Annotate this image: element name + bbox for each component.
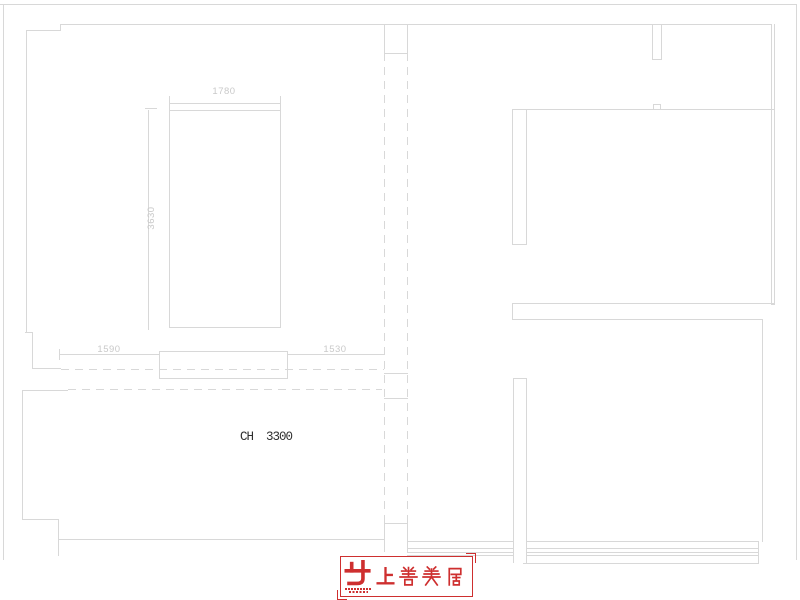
logo-brand-text — [375, 566, 465, 587]
wall-line — [771, 24, 772, 305]
wall-line — [32, 332, 33, 369]
company-logo — [340, 556, 473, 597]
wall-line — [26, 30, 61, 31]
dim-label-opening-right: 1530 — [307, 345, 363, 355]
wall-line — [527, 555, 759, 556]
wall-line — [169, 110, 170, 328]
wall-line — [512, 303, 775, 304]
dim-label-left-height: 3630 — [147, 190, 157, 246]
wall-line — [22, 390, 68, 391]
wall-line — [384, 53, 408, 54]
wall-line — [407, 24, 408, 54]
wall-line — [58, 539, 385, 540]
ceiling-height-label-left-room: CH 3300 — [240, 429, 292, 445]
page-border-line — [0, 4, 797, 5]
wall-line — [60, 24, 772, 25]
wall-line — [660, 104, 661, 109]
wall-line — [758, 541, 759, 564]
wall-line — [652, 24, 653, 60]
wall-line — [280, 110, 281, 328]
logo-microtext-row2 — [349, 591, 368, 593]
wall-line — [527, 552, 759, 553]
wall-line — [159, 351, 160, 379]
wall-line — [384, 523, 408, 524]
dimension-line — [169, 96, 170, 113]
wall-line — [512, 244, 527, 245]
brand-char-shang — [375, 566, 396, 587]
page-border-line — [796, 4, 797, 560]
floor-plan-canvas: 1780 3630 1590 1530 CH 3300 CH2770 CX 50… — [0, 0, 800, 600]
brand-char-ju — [444, 566, 465, 587]
dashed-opening-line — [61, 369, 384, 370]
logo-monogram-icon — [344, 560, 372, 587]
dashed-beam-line — [407, 53, 408, 518]
wall-line — [58, 519, 59, 556]
wall-line — [384, 398, 408, 399]
dimension-line — [59, 349, 60, 360]
wall-line — [526, 378, 527, 563]
logo-mark — [344, 560, 372, 594]
wall-line — [407, 541, 513, 542]
brand-char-mei — [421, 566, 442, 587]
dashed-opening-line — [68, 389, 382, 390]
logo-frame-corner — [337, 590, 347, 600]
wall-line — [512, 303, 513, 320]
wall-line — [384, 373, 408, 374]
brand-char-shan — [398, 566, 419, 587]
wall-line — [169, 110, 281, 111]
wall-line — [512, 109, 513, 245]
wall-line — [526, 109, 527, 245]
wall-line — [526, 319, 762, 320]
wall-line — [653, 104, 654, 109]
wall-line — [513, 378, 514, 563]
wall-line — [774, 24, 775, 305]
wall-line — [384, 24, 385, 54]
dimension-line — [169, 103, 281, 104]
logo-microtext-row1 — [345, 588, 372, 591]
wall-line — [527, 541, 759, 542]
dimension-line — [145, 108, 157, 109]
wall-line — [771, 304, 775, 305]
page-border-line — [3, 4, 4, 560]
wall-line — [523, 563, 759, 564]
wall-line — [26, 30, 27, 333]
wall-line — [169, 327, 281, 328]
ceiling-height-label-right-room: CH2770 CX 500 — [614, 566, 660, 600]
wall-line — [661, 24, 662, 60]
wall-line — [22, 390, 23, 520]
wall-line — [159, 351, 288, 352]
wall-line — [652, 59, 662, 60]
wall-line — [407, 552, 513, 553]
wall-line — [512, 109, 774, 110]
wall-line — [32, 368, 61, 369]
wall-line — [527, 548, 759, 549]
wall-line — [513, 378, 527, 379]
dimension-line — [280, 96, 281, 113]
wall-line — [407, 548, 513, 549]
wall-line — [512, 319, 527, 320]
wall-line — [22, 519, 59, 520]
dashed-beam-line — [384, 53, 385, 518]
dim-label-top-width: 1780 — [196, 87, 252, 97]
wall-line — [762, 319, 763, 542]
wall-line — [287, 351, 288, 379]
wall-line — [60, 24, 61, 31]
dim-label-opening-left: 1590 — [81, 345, 137, 355]
logo-frame-corner — [466, 553, 476, 563]
wall-line — [159, 378, 288, 379]
